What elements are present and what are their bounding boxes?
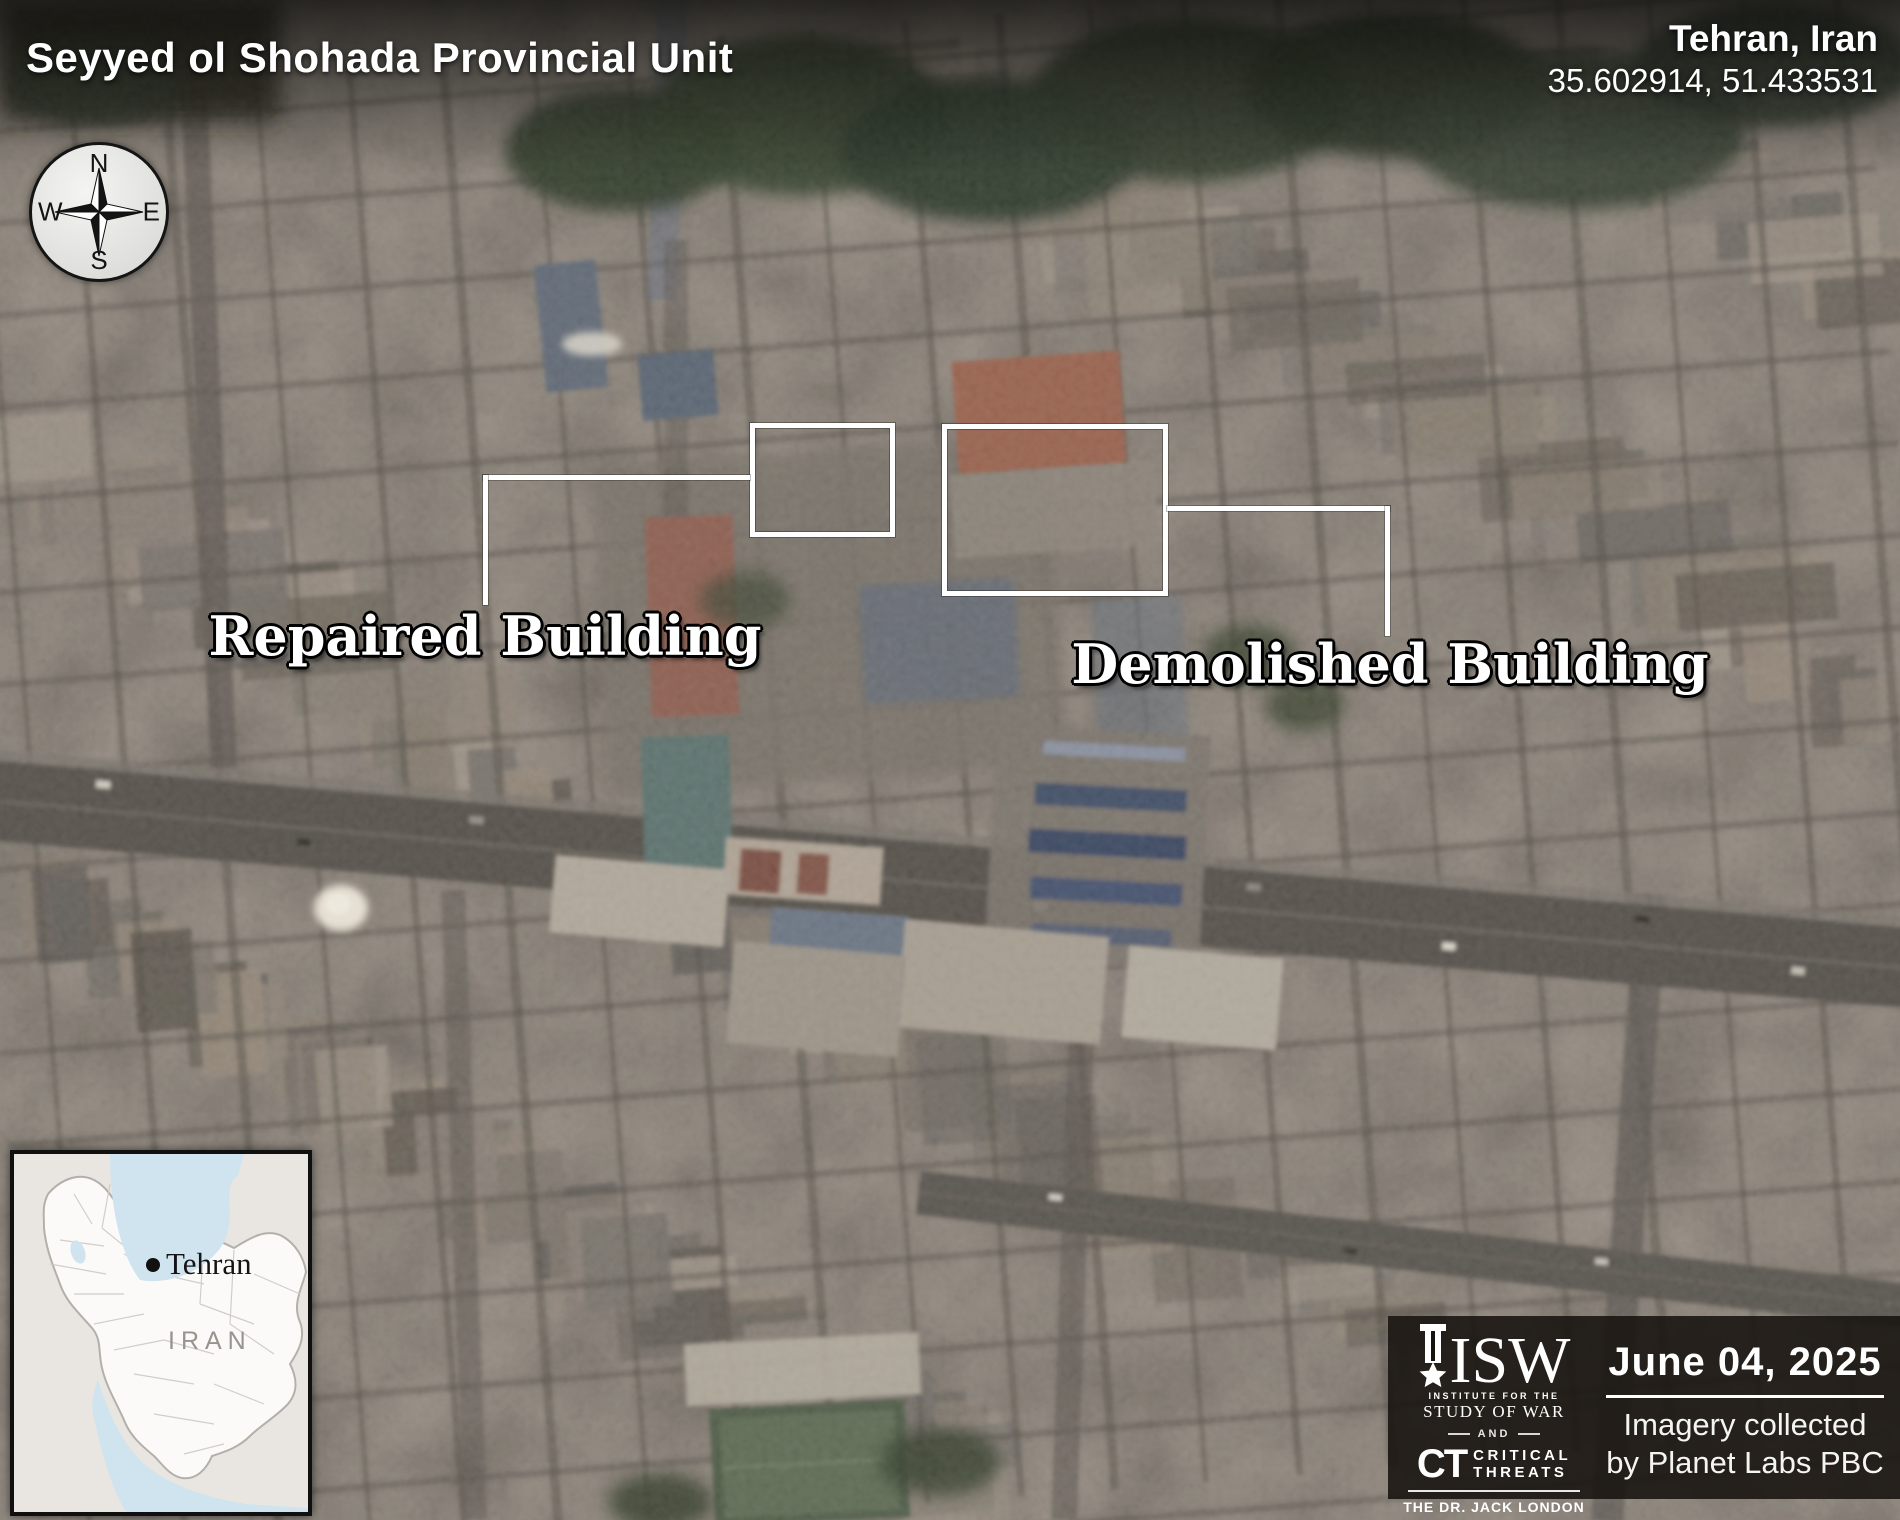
label-demolished-building: Demolished Building <box>1071 632 1708 696</box>
org-logos: ISW INSTITUTE FOR THE STUDY OF WAR AND C… <box>1400 1326 1588 1489</box>
compass-south-label: S <box>90 245 107 276</box>
label-repaired-building: Repaired Building <box>208 604 761 668</box>
compass-north-label: N <box>90 148 109 179</box>
imagery-credit: June 04, 2025 Imagery collected by Plane… <box>1600 1326 1890 1489</box>
location-name: Tehran, Iran <box>1548 18 1878 61</box>
inset-map <box>10 1150 312 1516</box>
annotation-box-repaired <box>750 423 895 537</box>
leader-line-repaired-vertical <box>483 475 488 605</box>
fund-line-2: GEOSPATIAL FUND <box>1421 1516 1567 1520</box>
date-label: June 04, 2025 <box>1608 1340 1881 1385</box>
compass-west-label: W <box>38 197 63 228</box>
compass-rose-icon: N S E W <box>29 142 169 282</box>
credit-panel: ISW INSTITUTE FOR THE STUDY OF WAR AND C… <box>1388 1316 1900 1499</box>
isw-medal-ribbon-icon <box>1418 1324 1448 1388</box>
compass-east-label: E <box>143 197 160 228</box>
iran-label: IRAN <box>168 1327 252 1356</box>
imagery-line-2: by Planet Labs PBC <box>1606 1444 1883 1482</box>
isw-wordmark: ISW <box>1450 1334 1571 1388</box>
iran-map-icon <box>14 1154 308 1512</box>
location-block: Tehran, Iran 35.602914, 51.433531 <box>1548 18 1878 100</box>
institute-line-1: INSTITUTE FOR THE <box>1429 1391 1560 1401</box>
fund-line-1: THE DR. JACK LONDON <box>1403 1498 1585 1516</box>
ct-line-2: THREATS <box>1473 1464 1571 1481</box>
page-title: Seyyed ol Shohada Provincial Unit <box>26 34 733 82</box>
and-dash-right <box>1518 1433 1540 1435</box>
tehran-dot-icon <box>146 1258 160 1272</box>
leader-line-demolished-vertical <box>1385 506 1390 636</box>
annotation-box-demolished <box>942 424 1168 596</box>
coordinates: 35.602914, 51.433531 <box>1548 61 1878 101</box>
isw-logo: ISW <box>1418 1326 1571 1388</box>
annotated-satellite-map: Seyyed ol Shohada Provincial Unit Tehran… <box>0 0 1900 1520</box>
date-divider <box>1606 1395 1884 1398</box>
and-separator: AND <box>1448 1428 1541 1440</box>
imagery-line-1: Imagery collected <box>1606 1406 1883 1444</box>
and-label: AND <box>1478 1428 1511 1440</box>
fund-divider <box>1408 1490 1581 1492</box>
ct-line-1: CRITICAL <box>1473 1447 1571 1464</box>
ct-wordmark: CT <box>1417 1446 1466 1482</box>
and-dash-left <box>1448 1433 1470 1435</box>
leader-line-repaired-horizontal <box>483 475 750 480</box>
critical-threats-logo: CT CRITICAL THREATS <box>1417 1446 1571 1482</box>
tehran-label: Tehran <box>166 1246 252 1282</box>
institute-line-2: STUDY OF WAR <box>1423 1402 1565 1422</box>
leader-line-demolished-horizontal <box>1167 506 1390 511</box>
